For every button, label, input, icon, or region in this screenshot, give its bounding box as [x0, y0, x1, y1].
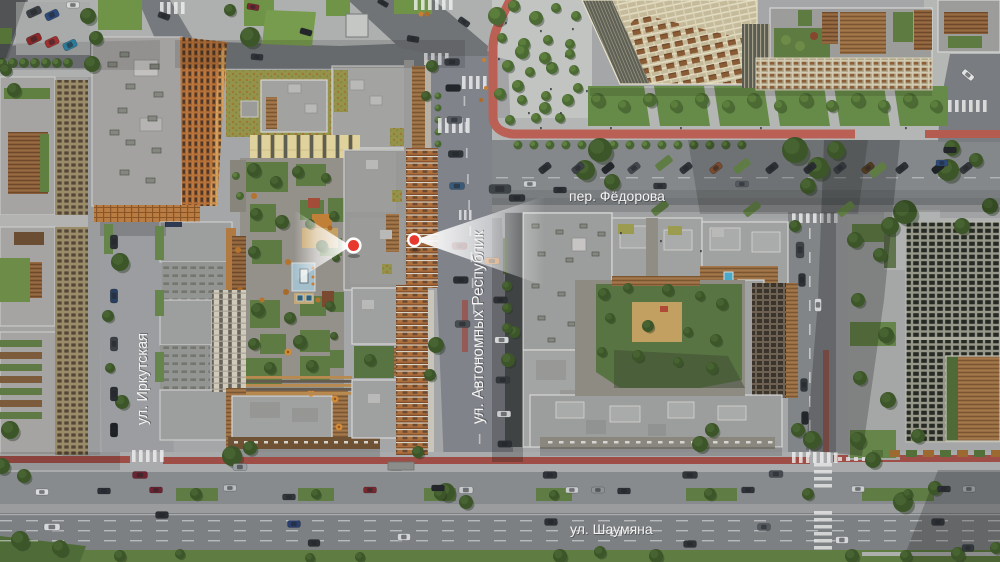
svg-text:ул. Автономных Республик: ул. Автономных Республик [470, 230, 487, 424]
svg-text:пер. Фёдорова: пер. Фёдорова [569, 188, 665, 204]
svg-text:ул. Шаумяна: ул. Шаумяна [570, 521, 653, 537]
svg-text:ул. Иркутская: ул. Иркутская [135, 333, 151, 425]
